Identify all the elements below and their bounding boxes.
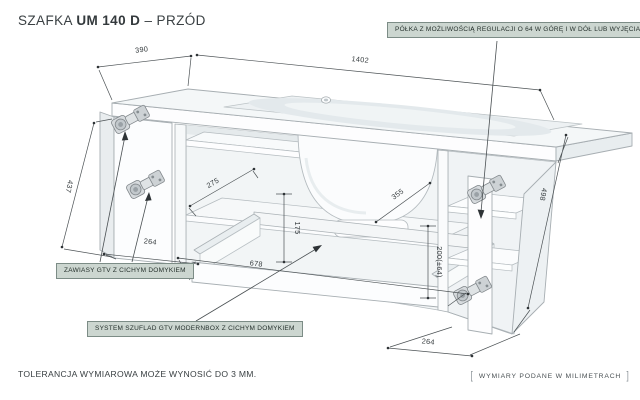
dim-drawer-inner-height: 175 <box>293 221 302 234</box>
dim-shelf-adjust-range: 200(±64) <box>435 246 444 278</box>
callout-drawer-system: SYSTEM SZUFLAD GTV MODERNBOX Z CICHYM DO… <box>87 321 303 337</box>
dim-left-door-height: 437 <box>64 179 76 194</box>
right-divider <box>438 150 448 312</box>
callout-drawer-system-label: SYSTEM SZUFLAD GTV MODERNBOX Z CICHYM DO… <box>95 325 295 332</box>
cabinet-drawing <box>100 89 632 334</box>
dim-top-width: 1402 <box>351 54 369 65</box>
faucet-hole <box>321 97 330 103</box>
page: { "title": { "prefix": "SZAFKA", "model"… <box>0 0 640 400</box>
dim-left-door-width: 264 <box>143 236 157 247</box>
dim-top-depth: 390 <box>135 44 149 55</box>
dim-right-door-width: 264 <box>421 336 435 346</box>
dim-drawer-front-width: 678 <box>249 258 263 269</box>
technical-drawing: 390 1402 437 275 175 264 678 355 200(±64… <box>0 0 640 400</box>
callout-hinges: ZAWIASY GTV Z CICHYM DOMYKIEM <box>56 263 194 279</box>
left-divider <box>175 124 186 268</box>
callout-adjustable-shelf-label: PÓŁKA Z MOŻLIWOŚCIĄ REGULACJI O 64 W GÓR… <box>395 26 640 33</box>
callout-adjustable-shelf: PÓŁKA Z MOŻLIWOŚCIĄ REGULACJI O 64 W GÓR… <box>387 22 640 38</box>
callout-hinges-label: ZAWIASY GTV Z CICHYM DOMYKIEM <box>64 267 186 274</box>
